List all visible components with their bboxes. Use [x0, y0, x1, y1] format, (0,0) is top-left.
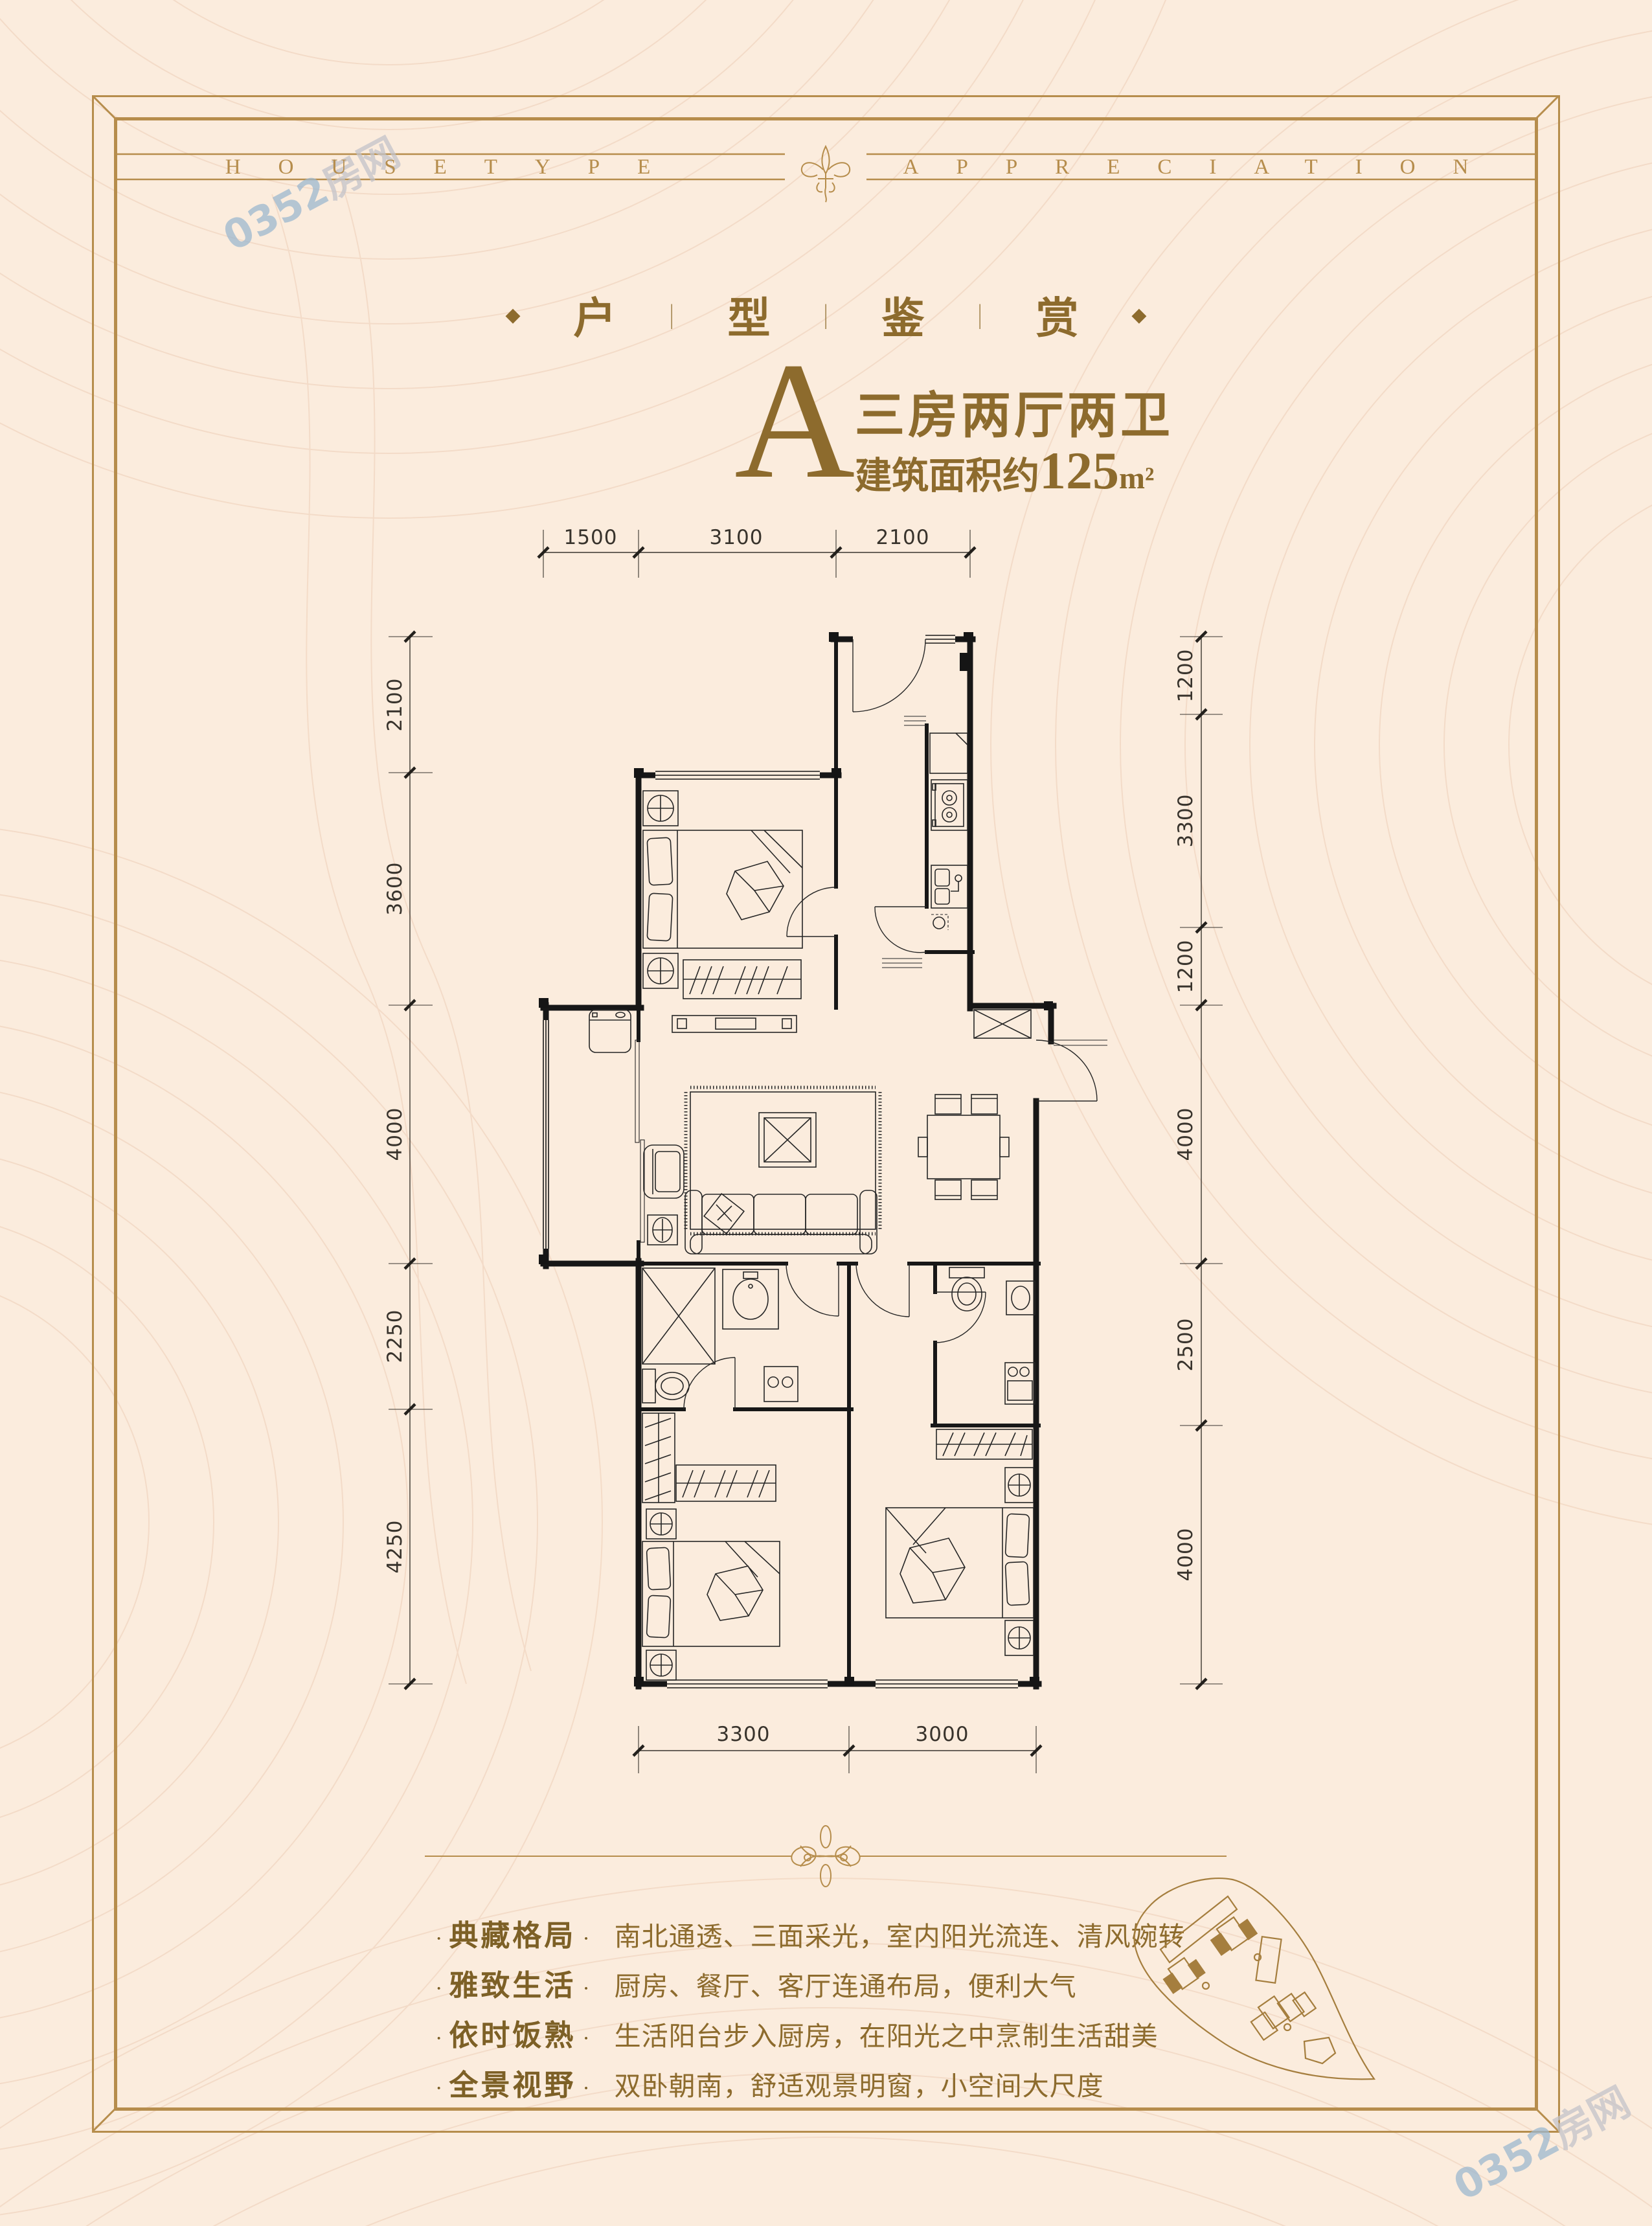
banner-left-text: HOUSETYPE — [225, 155, 688, 179]
kitchen-sink — [931, 865, 967, 930]
rug — [686, 1087, 880, 1234]
wardrobe — [936, 1429, 1032, 1459]
floor-plan: 1500 3100 2100 2100 3600 4000 2250 4250 … — [363, 505, 1295, 1800]
tv-console — [672, 1016, 797, 1032]
coffee-table — [759, 1113, 816, 1167]
building-cluster — [1207, 1911, 1258, 1958]
dim-label: 3300 — [1174, 794, 1197, 848]
feature-row: ·典藏格局· 南北通透、三面采光，室内阳光流连、清风婉转 — [429, 1912, 1186, 1954]
feature-row: ·依时饭熟· 生活阳台步入厨房，在阳光之中烹制生活甜美 — [429, 2012, 1159, 2054]
dim-label: 4000 — [1174, 1107, 1197, 1161]
wardrobe — [642, 1413, 776, 1503]
dim-label: 1200 — [1174, 940, 1197, 994]
dim-label: 2100 — [383, 678, 407, 732]
water-heater — [1005, 1363, 1035, 1404]
dimension-lines: 1500 3100 2100 2100 3600 4000 2250 4250 … — [383, 526, 1223, 1773]
dim-label: 4250 — [383, 1520, 407, 1574]
washbasin — [1006, 1281, 1035, 1315]
dim-label: 2250 — [383, 1310, 407, 1363]
unit-letter: A — [734, 337, 855, 504]
banner-right-text: APPRECIATION — [903, 155, 1506, 179]
toilet — [642, 1369, 689, 1403]
stove — [931, 780, 967, 830]
dim-label: 3100 — [710, 526, 764, 549]
dining-table — [918, 1095, 1009, 1199]
site-block — [1304, 2038, 1335, 2063]
dim-label: 1500 — [564, 526, 618, 549]
dim-label: 1200 — [1174, 649, 1197, 703]
walls — [539, 632, 1107, 1689]
lamp-table — [648, 1215, 677, 1245]
fridge — [930, 733, 967, 773]
building-cluster — [1247, 1981, 1316, 2043]
diamond-icon: ◆ — [1131, 304, 1146, 326]
feature-row: ·雅致生活· 厨房、餐厅、客厅连通布局，便利大气 — [429, 1962, 1077, 2004]
dim-label: 2100 — [876, 526, 930, 549]
bed — [643, 830, 802, 948]
washbasin — [723, 1269, 778, 1329]
shower — [642, 1268, 715, 1364]
dim-label: 3000 — [916, 1723, 969, 1746]
laundry-box — [764, 1367, 798, 1402]
diamond-icon: ◆ — [506, 304, 521, 326]
dim-label: 4000 — [383, 1107, 407, 1161]
footer-divider — [421, 1821, 1230, 1892]
toilet — [949, 1267, 984, 1311]
unit-type-label: 三房两厅两卫 — [855, 376, 1173, 448]
storage-closet — [974, 1010, 1031, 1038]
unit-area-label: 建筑面积约125m² — [855, 440, 1154, 501]
flourish-ornament-icon — [789, 1826, 862, 1887]
wardrobe — [683, 960, 801, 999]
poster-page: 0352房网 0352房网 HOUSETYPE APPRECIATION ◆ 户… — [0, 0, 1652, 2226]
dim-label: 3600 — [383, 862, 407, 916]
armchair — [644, 1145, 684, 1198]
bed — [642, 1541, 780, 1646]
dim-label: 2500 — [1174, 1318, 1197, 1372]
washing-machine — [589, 1010, 631, 1052]
feature-row: ·全景视野· 双卧朝南，舒适观景明窗，小空间大尺度 — [429, 2061, 1104, 2104]
column-blocks — [539, 632, 1053, 1687]
dim-label: 4000 — [1174, 1528, 1197, 1582]
sofa — [685, 1190, 877, 1254]
site-plan — [1127, 1865, 1386, 2098]
dim-label: 3300 — [717, 1723, 771, 1746]
doors — [635, 639, 1097, 1409]
